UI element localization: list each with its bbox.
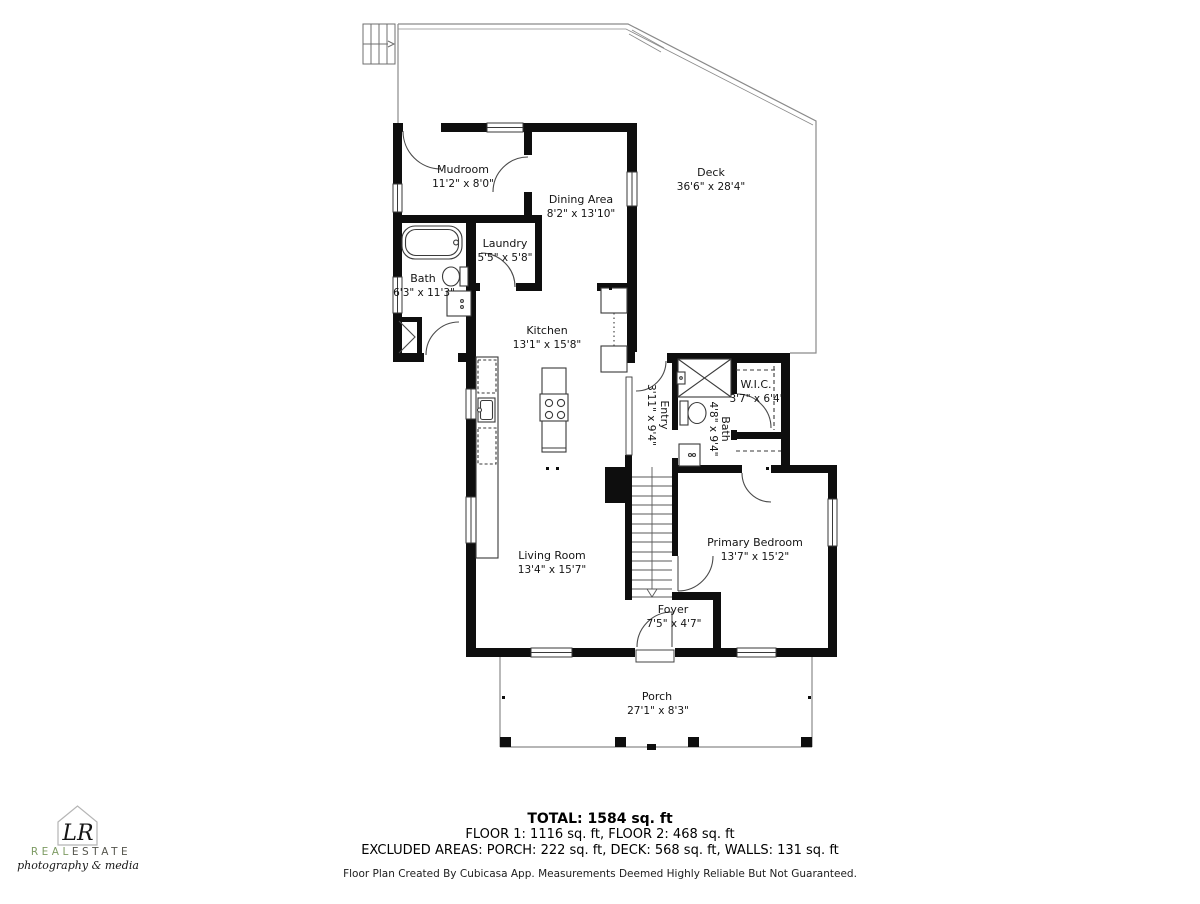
label-mudroom: Mudroom 11'2" x 8'0" xyxy=(432,163,494,190)
porch-dims: 27'1" x 8'3" xyxy=(627,705,689,717)
entry-name: Entry xyxy=(658,400,671,430)
mudroom-dining-door xyxy=(493,157,528,192)
floorplan-svg: Mudroom 11'2" x 8'0" Dining Area 8'2" x … xyxy=(0,0,1200,900)
kitchen-name: Kitchen xyxy=(526,324,567,337)
window-bedroom-bottom xyxy=(737,648,776,657)
bedroom-name: Primary Bedroom xyxy=(707,536,803,549)
laundry-dims: 5'5" x 5'8" xyxy=(477,252,532,264)
dining-dims: 8'2" x 13'10" xyxy=(547,208,615,220)
window-living-left xyxy=(466,497,476,543)
window-living-bottom xyxy=(531,648,572,657)
label-living: Living Room 13'4" x 15'7" xyxy=(518,549,586,576)
front-door-threshold xyxy=(636,650,674,662)
bath2-dims: 4'8" x 9'4" xyxy=(707,401,719,456)
laundry-name: Laundry xyxy=(483,237,528,250)
bedroom-dims: 13'7" x 15'2" xyxy=(721,551,789,563)
wic-dims: 3'7" x 6'4" xyxy=(729,393,784,405)
label-wic: W.I.C. 3'7" x 6'4" xyxy=(729,378,784,405)
living-dims: 13'4" x 15'7" xyxy=(518,564,586,576)
vanity-bath2 xyxy=(679,444,700,466)
excluded-areas: EXCLUDED AREAS: PORCH: 222 sq. ft, DECK:… xyxy=(0,843,1200,859)
window-bedroom-right xyxy=(828,499,837,546)
cubicasa-disclaimer: Floor Plan Created By Cubicasa App. Meas… xyxy=(0,868,1200,880)
foyer-name: Foyer xyxy=(658,603,689,616)
label-dining: Dining Area 8'2" x 13'10" xyxy=(547,193,615,220)
porch-name: Porch xyxy=(642,690,672,703)
total-area: TOTAL: 1584 sq. ft xyxy=(0,811,1200,827)
mudroom-name: Mudroom xyxy=(437,163,489,176)
floorplan-page: Mudroom 11'2" x 8'0" Dining Area 8'2" x … xyxy=(0,0,1200,900)
living-name: Living Room xyxy=(518,549,586,562)
label-bedroom: Primary Bedroom 13'7" x 15'2" xyxy=(707,536,803,563)
deck-dims: 36'6" x 28'4" xyxy=(677,181,745,193)
mudroom-dims: 11'2" x 8'0" xyxy=(432,178,494,190)
stairs-down-arrow xyxy=(647,589,657,597)
bathtub xyxy=(402,226,462,259)
bath1-door xyxy=(426,322,459,355)
label-porch: Porch 27'1" x 8'3" xyxy=(627,690,689,717)
bedroom-closet-door xyxy=(742,473,771,502)
dining-name: Dining Area xyxy=(549,193,613,206)
window-mudroom-left xyxy=(393,184,402,212)
toilet-bath2 xyxy=(680,401,706,425)
mudroom-entry-door xyxy=(403,131,441,169)
bedroom-entry-door xyxy=(678,556,713,591)
toilet-bath1 xyxy=(443,267,469,286)
floor-areas: FLOOR 1: 1116 sq. ft, FLOOR 2: 468 sq. f… xyxy=(0,827,1200,843)
foyer-dims: 7'5" x 4'7" xyxy=(646,618,701,630)
entry-dims: 3'11" x 9'4" xyxy=(645,384,657,446)
bath2-name: Bath xyxy=(719,416,732,442)
deck-stairs xyxy=(363,24,395,64)
kitchen-dims: 13'1" x 15'8" xyxy=(513,339,581,351)
kitchen-island xyxy=(540,368,568,452)
window-mudroom-top xyxy=(487,123,523,132)
window-kitchen-left xyxy=(466,389,476,419)
label-bath2: Bath 4'8" x 9'4" xyxy=(707,401,732,456)
label-laundry: Laundry 5'5" x 5'8" xyxy=(477,237,532,264)
kitchen-cabinets-right xyxy=(601,288,627,372)
wic-name: W.I.C. xyxy=(740,378,771,391)
label-kitchen: Kitchen 13'1" x 15'8" xyxy=(513,324,581,351)
shower xyxy=(677,359,731,397)
kitchen-counter-left xyxy=(476,357,498,558)
window-dining-right xyxy=(627,172,637,206)
bath1-dims: 6'3" x 11'3" xyxy=(393,287,455,299)
label-deck: Deck 36'6" x 28'4" xyxy=(677,166,745,193)
bath1-name: Bath xyxy=(410,272,436,285)
area-summary: TOTAL: 1584 sq. ft FLOOR 1: 1116 sq. ft,… xyxy=(0,811,1200,880)
label-entry: Entry 3'11" x 9'4" xyxy=(645,384,671,446)
deck-name: Deck xyxy=(697,166,725,179)
fixtures xyxy=(402,226,781,558)
stairs-rail xyxy=(626,377,632,455)
stove xyxy=(540,394,568,421)
